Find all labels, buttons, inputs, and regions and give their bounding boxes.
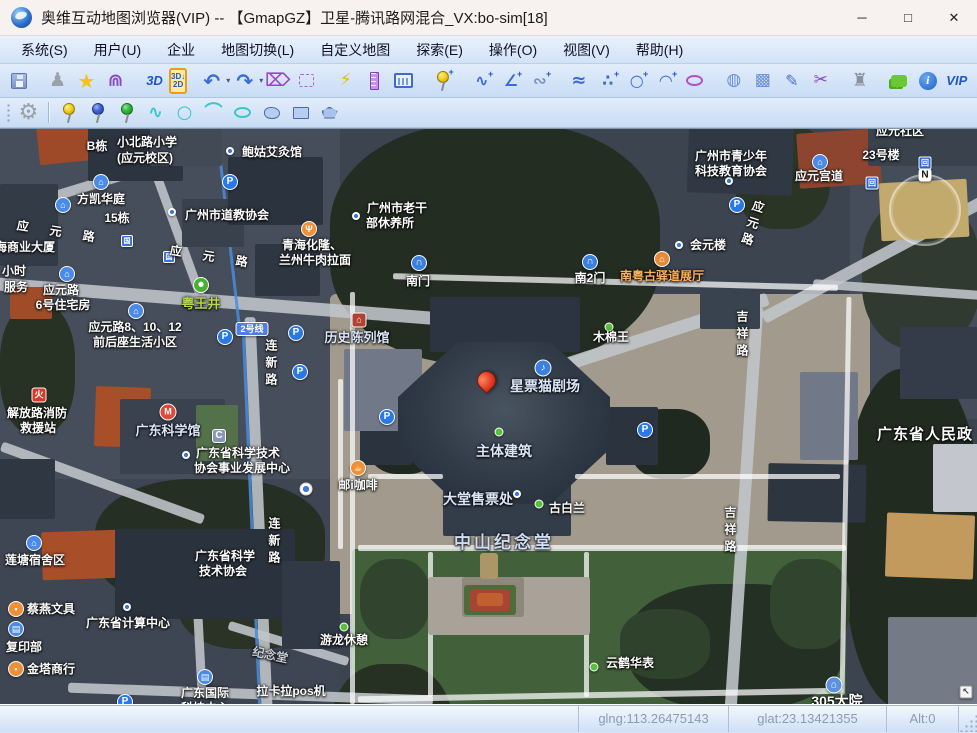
dot-icon[interactable] [675,241,683,249]
draw-polygon-button[interactable] [316,100,343,126]
save-button[interactable] [5,68,32,94]
pin-head [121,103,133,115]
museumorg-icon[interactable]: ⌂ [654,251,670,267]
add-points-button-icon: ∴ [602,73,613,89]
dot-icon[interactable] [513,490,521,498]
map-label: 15栋 [104,212,129,226]
roadbadge-icon[interactable]: 国 [121,235,133,247]
3d-2d-toggle-button[interactable]: 3D↓2D [169,68,187,94]
draw-region-button[interactable] [258,100,285,126]
map-label: 鲍姑艾灸馆 [242,146,302,160]
monument-feature [480,553,498,579]
map-label: B栋 [87,140,108,154]
map-footpath [338,379,343,549]
green-pin-button-icon [119,102,135,124]
plus-badge-icon: + [614,69,619,79]
redo-button[interactable]: ↷ [231,68,258,94]
gate-icon[interactable]: ∩ [582,254,598,270]
add-arc-button[interactable]: ◠+ [652,68,679,94]
yellow-pin-button-icon [61,102,77,124]
p-icon[interactable]: P [217,329,233,345]
info-icon: i [919,72,937,90]
shop-icon[interactable]: ▪ [8,661,24,677]
pin-head [63,103,75,115]
status-alt: Alt:0 [887,705,959,732]
chart-button[interactable] [390,68,417,94]
window-title: 奥维互动地图浏览器(VIP) -- 【GmapGZ】卫星-腾讯路网混合_VX:b… [41,7,548,28]
add-points-button[interactable]: ∴+ [594,68,621,94]
menu-item-3[interactable]: 地图切换(L) [208,37,307,63]
dot-icon[interactable] [123,603,131,611]
green-icon[interactable] [535,500,544,509]
menu-item-6[interactable]: 操作(O) [476,37,550,63]
map-label: 应元宫道 [795,170,843,184]
map-label: 应元社区 [876,128,924,139]
draw-circle-button[interactable]: ○ [171,100,198,126]
settings-gear-button-icon: ⚙ [19,102,39,124]
museumred-icon[interactable]: ⌂ [352,313,367,328]
map-label: 海商业大厦 [0,241,55,255]
delete-button-icon: ⌦ [265,72,290,90]
map-label: 星票猫剧场 [510,378,580,394]
menu-item-5[interactable]: 探索(E) [403,37,476,63]
b305-icon[interactable]: ⌂ [826,677,843,694]
map-label: 复印部 [6,641,42,655]
pin-needle [66,113,70,122]
map-label: 技术协会 [199,565,247,579]
printer-icon[interactable]: ▤ [8,621,24,637]
gcam-icon[interactable] [193,277,209,293]
minimize-button[interactable]: ─ [839,0,885,35]
green-icon[interactable] [340,623,349,632]
plus-badge-icon: + [643,69,648,79]
select-region-icon [299,74,314,87]
green-pin-button[interactable] [113,100,140,126]
vip-button[interactable]: VIP [943,68,970,94]
map-label: 6号住宅房 [36,299,91,313]
map-building [768,463,867,523]
add-polyline-button-icon: ∿ [475,73,488,89]
map-trees [360,559,430,639]
map-label: 救援站 [20,422,56,436]
fire-icon[interactable]: 火 [32,388,47,403]
undo-button[interactable]: ↶ [198,68,225,94]
map-label: 应元路 [43,284,79,298]
chat-button[interactable] [885,68,912,94]
plus-badge-icon: + [449,67,454,77]
blue-pin-button[interactable] [84,100,111,126]
draw-region-button-icon [264,107,280,119]
add-filled-rect-button-icon: ▩ [755,72,771,89]
map-label: 小时 [2,265,26,279]
draw-arc-button[interactable]: ⌒ [200,100,227,126]
menu-item-4[interactable]: 自定义地图 [307,37,403,63]
map-label: (应元校区) [117,152,173,166]
map-label: 前后座生活小区 [93,336,177,350]
home-icon[interactable]: ⌂ [26,535,42,551]
dot-icon[interactable] [182,451,190,459]
3d-view-button-label: 3D [146,73,163,88]
add-circle-button[interactable]: ○+ [623,68,650,94]
status-empty-panel [0,705,579,732]
map-label: 金塔商行 [27,663,75,677]
building-3d-button-icon: ♜ [852,72,868,90]
p-icon[interactable]: P [222,174,238,190]
add-angle-button[interactable]: ∠+ [497,68,524,94]
map-footpath [368,474,443,479]
vip-button-label: VIP [946,73,967,88]
add-placemark-button[interactable]: + [429,68,456,94]
building-3d-button[interactable]: ♜ [846,68,873,94]
p-icon[interactable]: P [117,694,133,704]
map-label: 部休养所 [366,217,414,231]
map-label: 方凯华庭 [77,193,125,207]
add-angle-button-icon: ∠ [504,73,518,89]
ruler-button[interactable] [361,68,388,94]
draw-rect-button[interactable] [287,100,314,126]
map-building [933,444,977,512]
bigdot-icon[interactable] [300,483,313,496]
toolbar-drag-handle[interactable] [5,102,11,124]
add-placemark-button-icon: + [435,70,451,92]
chart-icon [394,73,413,88]
save-icon [11,73,27,89]
rest-icon[interactable]: Ψ [301,221,317,237]
undo-button-icon: ↶ [203,71,220,91]
dot-icon[interactable] [168,208,176,216]
settings-gear-button[interactable]: ⚙ [15,100,42,126]
map-label: 大堂售票处 [443,491,513,507]
map-label: 蔡燕文具 [27,603,75,617]
menu-item-7[interactable]: 视图(V) [550,37,623,63]
plus-badge-icon: + [488,69,493,79]
map-label: 青海化隆、 [282,239,342,253]
map-label: 连新路 [266,517,280,568]
plus-badge-icon: + [672,69,677,79]
map-label: 南2门 [575,272,606,286]
draw-polyline-button[interactable]: ∿ [142,100,169,126]
menu-item-1[interactable]: 用户(U) [81,37,154,63]
pay-icon[interactable]: ▤ [197,669,213,685]
map-label: 广东省计算中心 [86,617,170,631]
yellow-pin-button[interactable] [55,100,82,126]
map-label: 南粤古驿道展厅 [620,270,704,284]
map-building [900,327,977,399]
map-label: 广东省科学技术 [196,447,280,461]
add-label-button-icon: ✎ [785,73,798,89]
add-curve-button[interactable]: ∾+ [526,68,553,94]
map-building [0,459,55,519]
delete-button[interactable]: ⌦ [264,68,291,94]
map-label: 科技中心 [181,702,229,704]
plus-badge-icon: + [517,69,522,79]
nbadge-icon[interactable]: N [919,169,932,182]
map-label: 吉祥路 [734,310,748,361]
add-filled-circle-button-icon: ◍ [726,72,741,89]
draw-rect-button-icon [293,107,309,119]
3d-view-button[interactable]: 3D [141,68,168,94]
menu-bar: 系统(S)用户(U)企业地图切换(L)自定义地图探索(E)操作(O)视图(V)帮… [0,36,977,64]
p-icon[interactable]: P [288,325,304,341]
map-label: 会元楼 [690,239,726,253]
map-label: 南门 [406,275,430,289]
map-label: 应元路8、10、12 [88,321,181,335]
map-label: 小北路小学 [117,136,177,150]
title-bar: 奥维互动地图浏览器(VIP) -- 【GmapGZ】卫星-腾讯路网混合_VX:b… [0,0,977,36]
compass-ring [889,174,961,246]
add-ellipse-button-icon [686,75,703,86]
map-label: 广东国际 [181,687,229,701]
map-label: 主体建筑 [476,443,532,459]
menu-item-0[interactable]: 系统(S) [8,37,81,63]
user-manager-button[interactable]: ♟ [44,68,71,94]
search-binoculars-button[interactable]: ⋒ [102,68,129,94]
menu-item-2[interactable]: 企业 [154,37,208,63]
map-label: 木棉王 [593,331,629,345]
map-footpath [358,545,846,551]
coffee-icon[interactable]: ☕ [350,460,366,476]
map-label: 广州市青少年 [695,150,767,164]
home-icon[interactable]: ⌂ [812,154,828,170]
add-circle-button-icon: ○ [630,73,644,89]
cut-button-icon: ✂ [814,72,828,89]
toolbar-main: ♟★⋒3D3D↓2D↶▾↷▾⌦⚡+∿+∠+∾+≈∴+○+◠+◍▩✎✂♜iVIP [0,64,977,98]
status-glat: glat:23.13421355 [729,705,887,732]
map-label: 广东科学馆 [135,424,200,439]
shop-icon[interactable]: ▪ [8,601,24,617]
map-label: 服务 [4,281,28,295]
home-icon[interactable]: ⌂ [128,303,144,319]
map-canvas[interactable]: PPPPPPPP⌂⌂⌂⌂⌂⌂Ψ☕▪▪▤▤⌂♪M⌂火⌂∩∩回回国国NC2号线↖海商… [0,128,977,704]
add-polyline-button[interactable]: ∿+ [468,68,495,94]
corner-icon[interactable]: ↖ [960,686,973,699]
pin-needle [441,81,445,90]
map-label: 邮i咖啡 [338,479,377,493]
add-filled-circle-button[interactable]: ◍ [720,68,747,94]
draw-polygon-button-icon [322,107,338,119]
ruler-icon [370,72,379,90]
green-icon[interactable] [590,663,599,672]
map-label: 科技教育协会 [695,165,767,179]
track-button[interactable]: ⚡ [332,68,359,94]
home-icon[interactable]: ⌂ [55,197,71,213]
dot-icon[interactable] [226,147,234,155]
map-label: 广州市老干 [367,202,427,216]
search-binoculars-button-icon: ⋒ [108,72,123,90]
dot-icon[interactable] [352,212,360,220]
add-ellipse-button[interactable] [681,68,708,94]
add-curve-button-icon: ∾ [533,73,546,89]
map-footpath [575,474,840,479]
redo-dropdown[interactable]: ▾ [259,68,263,94]
cbadge-icon[interactable]: C [212,429,226,443]
map-label: 云鹤华表 [606,657,654,671]
cut-button[interactable]: ✂ [807,68,834,94]
map-label: 历史陈列馆 [324,331,389,346]
app-logo-icon [11,7,32,28]
draw-ellipse-button-icon [234,107,251,118]
undo-dropdown[interactable]: ▾ [226,68,230,94]
p-icon[interactable]: P [729,197,745,213]
redo-button-icon: ↷ [236,71,253,91]
add-filled-rect-button[interactable]: ▩ [749,68,776,94]
toolbar-separator [48,102,49,123]
info-button[interactable]: i [914,68,941,94]
map-label: 兰州牛肉拉面 [279,254,351,268]
map-label: 莲塘宿舍区 [5,554,65,568]
map-label: 广东省人民政 [877,426,973,443]
map-label: 解放路消防 [7,407,67,421]
favorites-star-button-icon: ★ [78,71,96,91]
map-label: 广东省科学 [195,550,255,564]
close-button[interactable]: ✕ [931,0,977,35]
map-label: 连新路 [263,339,277,390]
draw-polyline-button-icon: ∿ [148,104,163,122]
map-label: 拉卡拉pos机 [256,685,325,699]
resize-grip[interactable] [959,714,977,732]
status-bar: glng:113.26475143 glat:23.13421355 Alt:0 [0,704,977,732]
map-label: 粤王井 [181,297,220,312]
p-icon[interactable]: P [379,409,395,425]
map-trees [770,559,850,649]
blue-pin-button-icon [90,102,106,124]
p-icon[interactable]: P [292,364,308,380]
toolbar-draw: ⚙∿○⌒ [0,98,977,128]
sci-icon[interactable]: M [160,404,177,421]
user-manager-button-icon: ♟ [49,71,66,90]
window-controls: ─ □ ✕ [839,0,977,35]
draw-arc-button-icon: ⌒ [205,104,223,122]
app-window: 奥维互动地图浏览器(VIP) -- 【GmapGZ】卫星-腾讯路网混合_VX:b… [0,0,977,733]
pin-head [437,71,449,83]
map-label: 广州市道教协会 [185,209,269,223]
map-label: 协会事业发展中心 [194,462,290,476]
music-icon[interactable]: ♪ [535,360,552,377]
status-glng: glng:113.26475143 [579,705,729,732]
map-label: 23号楼 [862,149,899,163]
favorites-star-button[interactable]: ★ [73,68,100,94]
pin-needle [124,113,128,122]
home-icon[interactable]: ⌂ [93,174,109,190]
map-label: 中山纪念堂 [454,533,554,553]
p-icon[interactable]: P [637,422,653,438]
select-region-button[interactable] [293,68,320,94]
add-label-button[interactable]: ✎ [778,68,805,94]
pin-needle [95,113,99,122]
menu-item-8[interactable]: 帮助(H) [623,37,696,63]
plus-badge-icon: + [546,69,551,79]
add-arc-button-icon: ◠ [660,73,672,89]
gate-icon[interactable]: ∩ [411,255,427,271]
maximize-button[interactable]: □ [885,0,931,35]
chat-icon [891,75,907,87]
metro-icon[interactable]: 回 [866,177,879,190]
add-parallel-button[interactable]: ≈ [565,68,592,94]
add-parallel-button-icon: ≈ [571,72,586,90]
green-icon[interactable] [495,428,504,437]
monument-feature [477,593,503,606]
badge2-icon[interactable]: 2号线 [235,322,268,336]
map-label: 305大院 [811,693,862,704]
draw-circle-button-icon: ○ [177,104,193,122]
home-icon[interactable]: ⌂ [59,266,75,282]
map-building [885,512,975,579]
track-button-icon: ⚡ [340,72,352,89]
draw-ellipse-button[interactable] [229,100,256,126]
map-label: 吉祥路 [722,506,736,557]
pin-head [92,103,104,115]
map-label: 古白兰 [549,502,585,516]
map-label: 游龙休憩 [320,634,368,648]
